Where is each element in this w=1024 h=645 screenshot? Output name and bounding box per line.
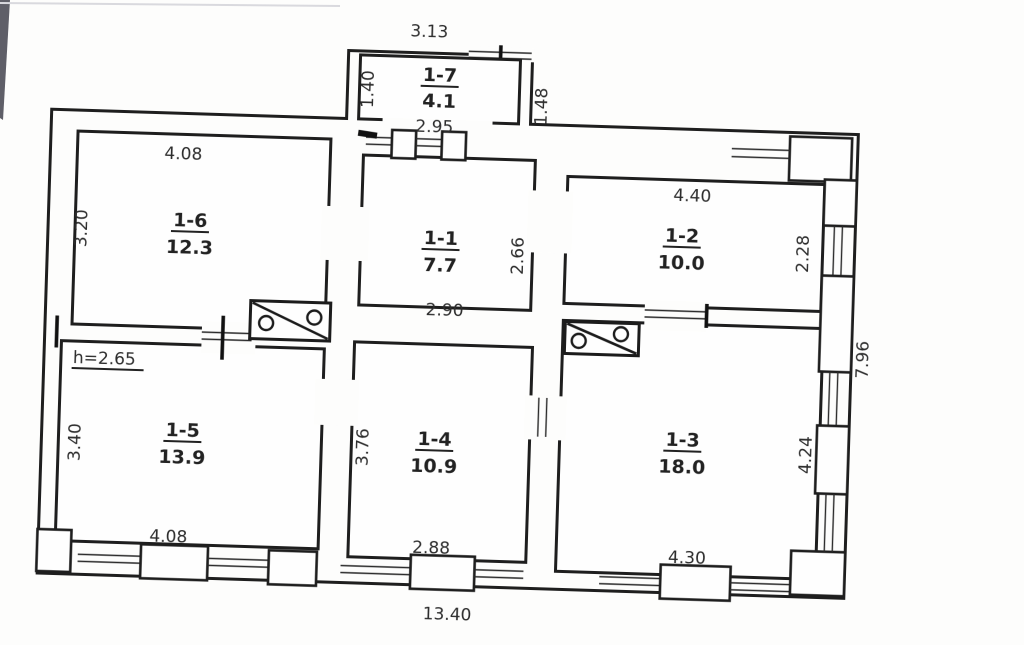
room-1-5 — [55, 341, 324, 549]
entrance-sill — [416, 139, 442, 140]
room-area: 10.0 — [657, 251, 705, 274]
room-1-4 — [348, 342, 533, 562]
wall-pier — [660, 565, 731, 601]
window-sill — [599, 577, 660, 579]
wall-pier — [789, 136, 852, 182]
room-id: 1-1 — [423, 227, 458, 250]
wall-pier — [823, 180, 856, 227]
window-sill — [730, 583, 789, 585]
entrance-sill — [366, 144, 392, 145]
window-sill — [732, 149, 790, 151]
window-sill — [832, 494, 834, 552]
dim-1-7-bottom: 2.95 — [415, 117, 453, 138]
floor-plan-drawing: 1-7 4.1 1-6 12.3 1-1 7.7 1-2 10.0 1-5 13… — [0, 0, 1024, 645]
wall-pier — [268, 550, 317, 585]
room-area: 18.0 — [658, 455, 706, 478]
dim-1-7-left: 1.40 — [358, 70, 379, 108]
window-sill — [474, 577, 523, 579]
dim-1-7-right: 1.48 — [531, 87, 552, 125]
window-sill — [340, 573, 410, 575]
entrance-sill — [416, 146, 442, 147]
room-area: 13.9 — [158, 446, 206, 469]
door-1-2-to-1-3 — [644, 300, 707, 332]
svg-text:h=2.65: h=2.65 — [73, 348, 136, 370]
room-area: 4.1 — [422, 90, 456, 113]
door-1-6-to-1-5 — [201, 321, 256, 355]
stove-icon — [564, 321, 639, 355]
room-id: 1-3 — [665, 429, 700, 452]
window-sill — [824, 494, 826, 552]
window-sill — [833, 226, 835, 276]
room-id: 1-5 — [165, 419, 200, 442]
wall-pier — [819, 275, 854, 372]
entrance-door-post — [391, 130, 416, 159]
scan-edge-artifact — [0, 0, 10, 120]
window-sill — [207, 565, 270, 567]
dim-1-2-top: 4.40 — [673, 186, 711, 207]
window-sill — [474, 570, 523, 572]
window-sill — [599, 584, 660, 586]
room-area: 10.9 — [410, 455, 458, 478]
scanned-floor-plan-page: 1-7 4.1 1-6 12.3 1-1 7.7 1-2 10.0 1-5 13… — [0, 0, 1024, 645]
window-sill — [732, 157, 790, 159]
window-sill — [78, 554, 141, 556]
corner-pier — [36, 529, 71, 572]
ceiling-height-note: h=2.65 — [72, 348, 145, 370]
window-sill — [828, 372, 830, 426]
door-1-1-to-1-2 — [526, 190, 573, 253]
dim-1-2-right: 2.28 — [793, 235, 814, 273]
dim-overall-height: 7.96 — [853, 341, 874, 379]
dim-1-6-left: 3.20 — [71, 209, 92, 247]
door-1-5-to-1-4 — [314, 379, 359, 426]
wall-joint-tick — [56, 315, 57, 347]
scan-top-edge-line — [0, 3, 340, 6]
dim-1-1-right: 2.66 — [508, 237, 529, 275]
room-area: 7.7 — [423, 254, 457, 277]
room-area: 12.3 — [166, 236, 214, 259]
room-id: 1-2 — [665, 225, 700, 248]
window-sill — [208, 558, 271, 560]
wall-pier — [140, 544, 208, 580]
window-sill — [730, 590, 789, 592]
dim-overall-width: 13.40 — [422, 604, 471, 626]
window-sill — [341, 566, 411, 568]
door-frame-tick — [222, 316, 223, 360]
dim-1-6-top: 4.08 — [164, 144, 202, 165]
dim-1-4-bottom: 2.88 — [412, 538, 450, 559]
window-sill — [841, 226, 843, 276]
dim-1-1-bottom: 2.90 — [425, 300, 463, 321]
room-id: 1-7 — [422, 64, 457, 87]
room-id: 1-4 — [417, 428, 452, 451]
dim-1-4-left: 3.76 — [353, 428, 374, 466]
window-sill — [836, 372, 838, 426]
wall-pier — [410, 555, 475, 591]
door-1-6-to-1-1 — [320, 206, 370, 261]
room-id: 1-6 — [173, 209, 208, 232]
dim-1-3-right: 4.24 — [796, 436, 817, 474]
dim-1-5-left: 3.40 — [65, 423, 86, 461]
dim-1-7-top: 3.13 — [410, 21, 448, 42]
dim-1-5-bottom: 4.08 — [149, 527, 187, 548]
window-sill — [78, 561, 141, 563]
plan-group: 1-7 4.1 1-6 12.3 1-1 7.7 1-2 10.0 1-5 13… — [35, 10, 883, 638]
door-frame-tick — [706, 304, 707, 328]
corner-pier — [790, 551, 845, 597]
dim-1-3-bottom: 4.30 — [668, 548, 706, 569]
stove-icon — [250, 301, 331, 341]
wall-pier — [815, 425, 849, 494]
